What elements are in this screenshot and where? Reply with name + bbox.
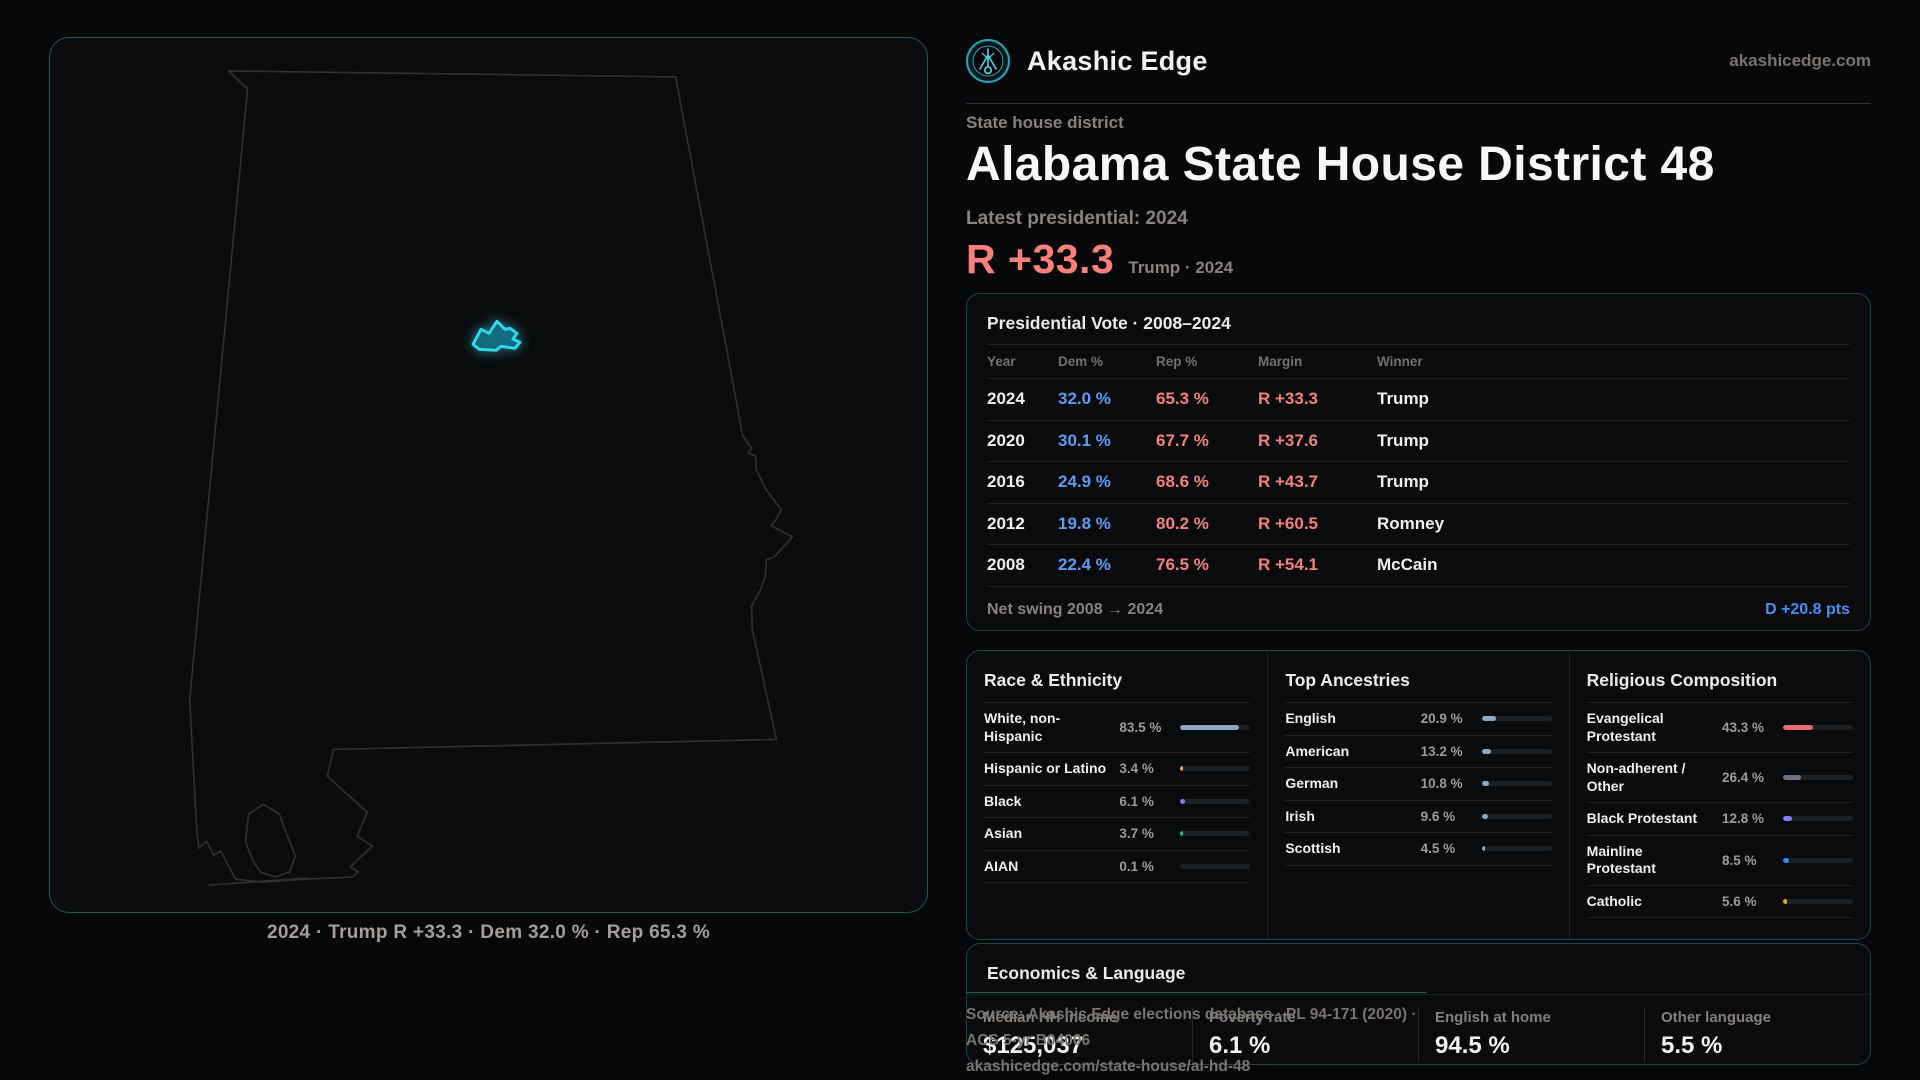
presidential-vote-panel: Presidential Vote · 2008–2024 Year Dem %… — [966, 293, 1871, 631]
economics-title: Economics & Language — [967, 960, 1870, 986]
source-line-1: Source: Akashic Edge elections database … — [966, 1002, 1426, 1054]
presidential-header-row: Year Dem % Rep % Margin Winner — [987, 345, 1850, 379]
presidential-row: 202030.1 %67.7 %R +37.6Trump — [987, 421, 1850, 463]
demo-value: 3.7 % — [1119, 826, 1171, 841]
demo-value: 10.8 % — [1421, 776, 1473, 791]
demo-label: Evangelical Protestant — [1587, 710, 1713, 745]
demo-label: White, non-Hispanic — [984, 710, 1110, 745]
header-divider — [966, 103, 1871, 104]
cell-margin: R +37.6 — [1258, 431, 1377, 451]
demo-bar-track — [1180, 864, 1250, 869]
demo-bar-fill — [1180, 766, 1182, 771]
cell-margin: R +33.3 — [1258, 389, 1377, 409]
cell-rep-pct: 80.2 % — [1156, 514, 1258, 534]
demo-value: 43.3 % — [1722, 720, 1774, 735]
economics-stat: English at home94.5 % — [1418, 1007, 1644, 1062]
brand-name: Akashic Edge — [1027, 46, 1208, 77]
demo-value: 12.8 % — [1722, 811, 1774, 826]
demo-bar-track — [1482, 749, 1552, 754]
site-header: Akashic Edge akashicedge.com — [966, 38, 1871, 84]
cell-winner: Trump — [1377, 472, 1850, 492]
demo-row: Hispanic or Latino3.4 % — [984, 753, 1250, 786]
presidential-row: 202432.0 %65.3 %R +33.3Trump — [987, 379, 1850, 421]
demo-bar-track — [1180, 766, 1250, 771]
demo-label: Asian — [984, 825, 1110, 843]
cell-year: 2012 — [987, 514, 1058, 534]
cell-rep-pct: 65.3 % — [1156, 389, 1258, 409]
presidential-rows: 202432.0 %65.3 %R +33.3Trump202030.1 %67… — [987, 379, 1850, 587]
source-line-2: akashicedge.com/state-house/al-hd-48 — [966, 1054, 1426, 1080]
demo-value: 13.2 % — [1421, 744, 1473, 759]
demo-value: 0.1 % — [1119, 859, 1171, 874]
demo-row: English20.9 % — [1285, 703, 1551, 736]
demo-value: 3.4 % — [1119, 761, 1171, 776]
religious-composition-column: Religious Composition Evangelical Protes… — [1569, 651, 1870, 939]
demo-bar-track — [1783, 816, 1853, 821]
demo-label: AIAN — [984, 858, 1110, 876]
demo-bar-track — [1180, 799, 1250, 804]
demo-bar-fill — [1783, 725, 1813, 730]
cell-margin: R +43.7 — [1258, 472, 1377, 492]
cell-rep-pct: 68.6 % — [1156, 472, 1258, 492]
demo-value: 26.4 % — [1722, 770, 1774, 785]
col-margin: Margin — [1258, 354, 1377, 369]
gulf-coastline — [209, 878, 308, 885]
brand-domain-link: akashicedge.com — [1729, 51, 1871, 71]
stat-label: Other language — [1661, 1009, 1870, 1026]
cell-dem-pct: 24.9 % — [1058, 472, 1156, 492]
demo-row: German10.8 % — [1285, 768, 1551, 801]
stat-value: 94.5 % — [1435, 1032, 1644, 1060]
demo-bar-fill — [1482, 781, 1490, 786]
cell-winner: Trump — [1377, 389, 1850, 409]
col-year: Year — [987, 354, 1058, 369]
cell-rep-pct: 76.5 % — [1156, 555, 1258, 575]
demo-bar-fill — [1180, 799, 1184, 804]
demographics-panel: Race & Ethnicity White, non-Hispanic83.5… — [966, 650, 1871, 940]
demo-value: 20.9 % — [1421, 711, 1473, 726]
presidential-row: 201219.8 %80.2 %R +60.5Romney — [987, 504, 1850, 546]
demo-label: Irish — [1285, 808, 1411, 826]
demo-bar-fill — [1482, 846, 1485, 851]
demo-bar-fill — [1783, 858, 1789, 863]
race-ethnicity-column: Race & Ethnicity White, non-Hispanic83.5… — [967, 651, 1267, 939]
cell-winner: Romney — [1377, 514, 1850, 534]
cell-dem-pct: 19.8 % — [1058, 514, 1156, 534]
demo-bar-track — [1482, 814, 1552, 819]
demo-row: Asian3.7 % — [984, 818, 1250, 851]
cell-year: 2020 — [987, 431, 1058, 451]
demo-label: Black Protestant — [1587, 810, 1713, 828]
demo-bar-track — [1482, 781, 1552, 786]
demo-row: Black6.1 % — [984, 786, 1250, 819]
cell-year: 2008 — [987, 555, 1058, 575]
demo-bar-track — [1180, 725, 1250, 730]
presidential-row: 200822.4 %76.5 %R +54.1McCain — [987, 545, 1850, 587]
cell-dem-pct: 32.0 % — [1058, 389, 1156, 409]
demo-bar-track — [1482, 846, 1552, 851]
source-attribution: Source: Akashic Edge elections database … — [966, 992, 1426, 1080]
religious-composition-rows: Evangelical Protestant43.3 %Non-adherent… — [1587, 703, 1853, 918]
demo-bar-track — [1783, 725, 1853, 730]
cell-dem-pct: 22.4 % — [1058, 555, 1156, 575]
demo-bar-track — [1180, 831, 1250, 836]
economics-stat: Other language5.5 % — [1644, 1007, 1870, 1062]
demo-bar-track — [1783, 858, 1853, 863]
demo-bar-fill — [1783, 775, 1801, 780]
cell-winner: Trump — [1377, 431, 1850, 451]
district-map-panel — [49, 37, 928, 913]
district-type-label: State house district — [966, 113, 1871, 133]
demo-label: Non-adherent / Other — [1587, 760, 1713, 795]
demo-label: Catholic — [1587, 893, 1713, 911]
demo-row: White, non-Hispanic83.5 % — [984, 703, 1250, 753]
demo-bar-fill — [1482, 814, 1489, 819]
demo-row: Mainline Protestant8.5 % — [1587, 836, 1853, 886]
demo-row: AIAN0.1 % — [984, 851, 1250, 884]
demo-label: English — [1285, 710, 1411, 728]
religious-composition-title: Religious Composition — [1587, 667, 1853, 693]
mobile-peninsula-outline — [246, 804, 296, 877]
map-caption: 2024 · Trump R +33.3 · Dem 32.0 % · Rep … — [49, 922, 928, 944]
headline-margin: R +33.3 Trump · 2024 — [966, 236, 1871, 283]
latest-presidential-label: Latest presidential: 2024 — [966, 208, 1871, 230]
alabama-outline — [190, 71, 793, 882]
race-ethnicity-rows: White, non-Hispanic83.5 %Hispanic or Lat… — [984, 703, 1250, 883]
demo-label: Scottish — [1285, 840, 1411, 858]
cell-dem-pct: 30.1 % — [1058, 431, 1156, 451]
top-ancestries-rows: English20.9 %American13.2 %German10.8 %I… — [1285, 703, 1551, 866]
demo-label: Black — [984, 793, 1110, 811]
margin-caption: Trump · 2024 — [1128, 258, 1233, 278]
demo-bar-track — [1783, 899, 1853, 904]
demo-label: Hispanic or Latino — [984, 760, 1110, 778]
cell-year: 2024 — [987, 389, 1058, 409]
demo-label: Mainline Protestant — [1587, 843, 1713, 878]
demo-bar-fill — [1783, 899, 1787, 904]
top-ancestries-title: Top Ancestries — [1285, 667, 1551, 693]
net-swing-label: Net swing 2008 → 2024 — [987, 601, 1163, 619]
col-winner: Winner — [1377, 354, 1850, 369]
demo-value: 6.1 % — [1119, 794, 1171, 809]
demo-bar-track — [1482, 716, 1552, 721]
presidential-title: Presidential Vote · 2008–2024 — [987, 310, 1850, 336]
stat-label: English at home — [1435, 1009, 1644, 1026]
demo-bar-track — [1783, 775, 1853, 780]
demo-bar-fill — [1482, 716, 1497, 721]
report-column: Akashic Edge akashicedge.com State house… — [966, 38, 1871, 1065]
cell-year: 2016 — [987, 472, 1058, 492]
demo-row: Non-adherent / Other26.4 % — [1587, 753, 1853, 803]
race-ethnicity-title: Race & Ethnicity — [984, 667, 1250, 693]
demo-row: Black Protestant12.8 % — [1587, 803, 1853, 836]
presidential-row: 201624.9 %68.6 %R +43.7Trump — [987, 462, 1850, 504]
demo-value: 4.5 % — [1421, 841, 1473, 856]
demo-value: 5.6 % — [1722, 894, 1774, 909]
demo-label: German — [1285, 775, 1411, 793]
stat-value: 5.5 % — [1661, 1032, 1870, 1060]
col-rep: Rep % — [1156, 354, 1258, 369]
demo-bar-fill — [1180, 831, 1183, 836]
cell-margin: R +60.5 — [1258, 514, 1377, 534]
akashic-edge-logo-icon — [966, 39, 1010, 83]
col-dem: Dem % — [1058, 354, 1156, 369]
demo-row: Evangelical Protestant43.3 % — [1587, 703, 1853, 753]
district-48-highlight[interactable] — [473, 321, 520, 350]
top-ancestries-column: Top Ancestries English20.9 %American13.2… — [1267, 651, 1568, 939]
net-swing-value: D +20.8 pts — [1765, 601, 1850, 619]
cell-winner: McCain — [1377, 555, 1850, 575]
cell-rep-pct: 67.7 % — [1156, 431, 1258, 451]
demo-row: Catholic5.6 % — [1587, 886, 1853, 919]
demo-value: 8.5 % — [1722, 853, 1774, 868]
alabama-map — [50, 38, 927, 912]
demo-bar-fill — [1783, 816, 1792, 821]
demo-bar-fill — [1482, 749, 1491, 754]
demo-bar-fill — [1180, 725, 1238, 730]
demo-label: American — [1285, 743, 1411, 761]
demo-row: Scottish4.5 % — [1285, 833, 1551, 866]
net-swing-row: Net swing 2008 → 2024 D +20.8 pts — [987, 587, 1850, 633]
demo-row: American13.2 % — [1285, 736, 1551, 769]
margin-value: R +33.3 — [966, 236, 1114, 283]
page-title: Alabama State House District 48 — [966, 137, 1871, 192]
demo-value: 9.6 % — [1421, 809, 1473, 824]
demo-row: Irish9.6 % — [1285, 801, 1551, 834]
cell-margin: R +54.1 — [1258, 555, 1377, 575]
demo-value: 83.5 % — [1119, 720, 1171, 735]
